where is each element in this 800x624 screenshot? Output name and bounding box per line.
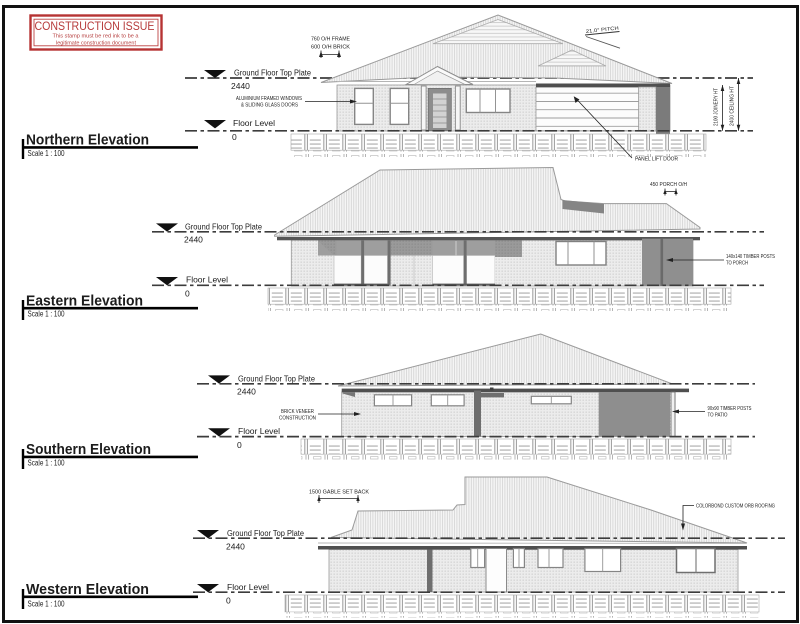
svg-text:Floor Level: Floor Level bbox=[186, 275, 228, 285]
svg-text:Scale 1 : 100: Scale 1 : 100 bbox=[28, 459, 65, 468]
svg-text:450 PORCH O/H: 450 PORCH O/H bbox=[650, 182, 687, 188]
svg-text:2100 JOINERY HT: 2100 JOINERY HT bbox=[714, 88, 720, 126]
svg-text:Floor Level: Floor Level bbox=[238, 426, 280, 436]
svg-text:ALUMINIUM FRAMED WINDOWS: ALUMINIUM FRAMED WINDOWS bbox=[236, 96, 303, 102]
svg-text:1500 GABLE SET BACK: 1500 GABLE SET BACK bbox=[309, 490, 370, 496]
svg-text:Ground Floor Top Plate: Ground Floor Top Plate bbox=[238, 374, 315, 384]
svg-text:2440: 2440 bbox=[231, 81, 250, 91]
svg-text:Scale 1 : 100: Scale 1 : 100 bbox=[28, 600, 65, 609]
svg-text:BRICK VENEER: BRICK VENEER bbox=[281, 409, 314, 415]
svg-text:TO PATIO: TO PATIO bbox=[708, 413, 728, 419]
svg-text:90x90 TIMBER POSTS: 90x90 TIMBER POSTS bbox=[708, 406, 753, 412]
svg-text:760 O/H FRAME: 760 O/H FRAME bbox=[311, 37, 351, 43]
svg-text:0: 0 bbox=[185, 289, 190, 299]
svg-text:Floor Level: Floor Level bbox=[233, 118, 275, 128]
svg-text:Ground Floor Top Plate: Ground Floor Top Plate bbox=[227, 528, 304, 538]
svg-text:2400 CEILING HT: 2400 CEILING HT bbox=[730, 86, 736, 126]
svg-text:Scale 1 : 100: Scale 1 : 100 bbox=[28, 149, 65, 158]
svg-text:0: 0 bbox=[237, 440, 242, 450]
svg-text:600 O/H BRICK: 600 O/H BRICK bbox=[311, 45, 351, 51]
svg-text:0: 0 bbox=[226, 596, 231, 606]
svg-text:2440: 2440 bbox=[184, 235, 203, 245]
svg-text:Scale 1 : 100: Scale 1 : 100 bbox=[28, 310, 65, 319]
svg-text:TO PORCH: TO PORCH bbox=[726, 261, 748, 267]
svg-text:Ground Floor Top Plate: Ground Floor Top Plate bbox=[185, 222, 262, 232]
svg-text:& SLIDING GLASS DOORS: & SLIDING GLASS DOORS bbox=[241, 103, 299, 109]
svg-text:PANEL LIFT DOOR: PANEL LIFT DOOR bbox=[635, 157, 678, 163]
svg-text:COLORBOND CUSTOM ORB ROOFING: COLORBOND CUSTOM ORB ROOFING bbox=[696, 504, 775, 510]
svg-text:CONSTRUCTION ISSUE: CONSTRUCTION ISSUE bbox=[35, 19, 155, 33]
svg-text:2440: 2440 bbox=[237, 387, 256, 397]
svg-text:legitimate construction docume: legitimate construction document bbox=[56, 40, 136, 46]
svg-text:CONSTRUCTION: CONSTRUCTION bbox=[279, 416, 316, 422]
svg-text:Ground Floor Top Plate: Ground Floor Top Plate bbox=[234, 68, 311, 78]
svg-text:Floor Level: Floor Level bbox=[227, 582, 269, 592]
svg-text:0: 0 bbox=[232, 132, 237, 142]
svg-text:140x140 TIMBER POSTS: 140x140 TIMBER POSTS bbox=[726, 254, 776, 260]
svg-text:This stamp must be red ink to: This stamp must be red ink to be a bbox=[53, 34, 140, 40]
svg-text:2440: 2440 bbox=[226, 542, 245, 552]
svg-text:Western Elevation: Western Elevation bbox=[26, 582, 149, 598]
svg-text:Eastern Elevation: Eastern Elevation bbox=[26, 293, 143, 309]
